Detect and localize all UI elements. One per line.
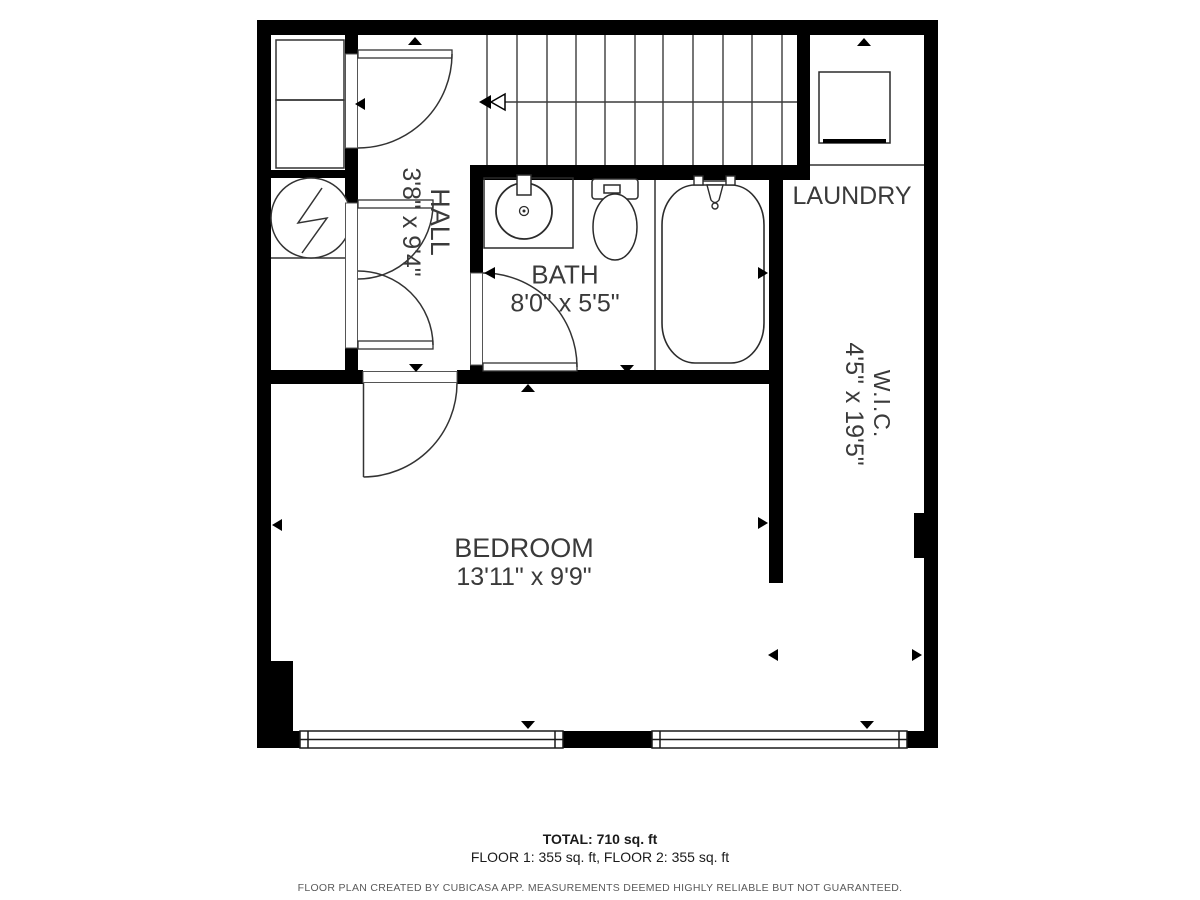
windows bbox=[300, 731, 907, 748]
disclaimer-text: FLOOR PLAN CREATED BY CUBICASA APP. MEAS… bbox=[0, 882, 1200, 894]
marker-down bbox=[521, 721, 535, 729]
room-name: BEDROOM bbox=[454, 533, 594, 563]
stairs-arrow-open bbox=[491, 94, 505, 110]
closet-door-top bbox=[358, 50, 452, 148]
floorplan-drawing bbox=[0, 0, 1200, 900]
toilet-icon bbox=[592, 179, 638, 260]
washer-icon bbox=[819, 72, 890, 143]
marker-east bbox=[758, 517, 768, 529]
room-name: W.I.C. bbox=[868, 342, 894, 465]
door-swing-arc bbox=[364, 383, 458, 477]
room-dimensions: 13'11" x 9'9" bbox=[454, 563, 594, 591]
room-label-bedroom: BEDROOM 13'11" x 9'9" bbox=[454, 533, 594, 591]
room-name: HALL bbox=[425, 167, 455, 276]
direction-markers bbox=[272, 37, 922, 729]
room-dimensions: 3'8" x 9'4" bbox=[397, 167, 425, 276]
closet-door-lower bbox=[358, 271, 433, 349]
room-label-wic: W.I.C. 4'5" x 19'5" bbox=[840, 342, 894, 465]
marker-east bbox=[912, 649, 922, 661]
stairs bbox=[487, 35, 797, 165]
room-dimensions: 8'0" x 5'5" bbox=[510, 290, 619, 318]
marker-up bbox=[857, 38, 871, 46]
room-dimensions: 4'5" x 19'5" bbox=[840, 342, 868, 465]
marker-down bbox=[860, 721, 874, 729]
marker-west bbox=[355, 98, 365, 110]
bedroom-door bbox=[364, 383, 458, 477]
marker-up bbox=[408, 37, 422, 45]
shower-fixture-icon bbox=[694, 176, 735, 209]
room-label-hall: HALL 3'8" x 9'4" bbox=[397, 167, 455, 276]
total-area-text: TOTAL: 710 sq. ft bbox=[0, 831, 1200, 847]
marker-west bbox=[272, 519, 282, 531]
floorplan-page: HALL 3'8" x 9'4" BATH 8'0" x 5'5" LAUNDR… bbox=[0, 0, 1200, 900]
window bbox=[300, 731, 563, 748]
room-name: LAUNDRY bbox=[792, 182, 911, 210]
marker-east bbox=[758, 267, 768, 279]
sink-vanity-icon bbox=[484, 175, 573, 248]
closet-shelves bbox=[276, 40, 344, 168]
bathtub-icon bbox=[662, 176, 764, 363]
room-name: BATH bbox=[510, 260, 619, 289]
marker-west bbox=[768, 649, 778, 661]
stairs-arrow-solid bbox=[479, 95, 491, 109]
room-label-bath: BATH 8'0" x 5'5" bbox=[510, 260, 619, 317]
footer: TOTAL: 710 sq. ft FLOOR 1: 355 sq. ft, F… bbox=[0, 831, 1200, 894]
room-label-laundry: LAUNDRY bbox=[792, 182, 911, 210]
marker-down bbox=[409, 364, 423, 372]
marker-west bbox=[484, 267, 495, 279]
marker-down bbox=[620, 365, 634, 373]
door-swing-arc bbox=[358, 271, 433, 345]
window bbox=[652, 731, 907, 748]
floor-areas-text: FLOOR 1: 355 sq. ft, FLOOR 2: 355 sq. ft bbox=[0, 849, 1200, 865]
water-heater-icon bbox=[271, 178, 351, 258]
door-swing-arc bbox=[358, 54, 452, 148]
walls bbox=[257, 20, 938, 748]
marker-up bbox=[521, 384, 535, 392]
